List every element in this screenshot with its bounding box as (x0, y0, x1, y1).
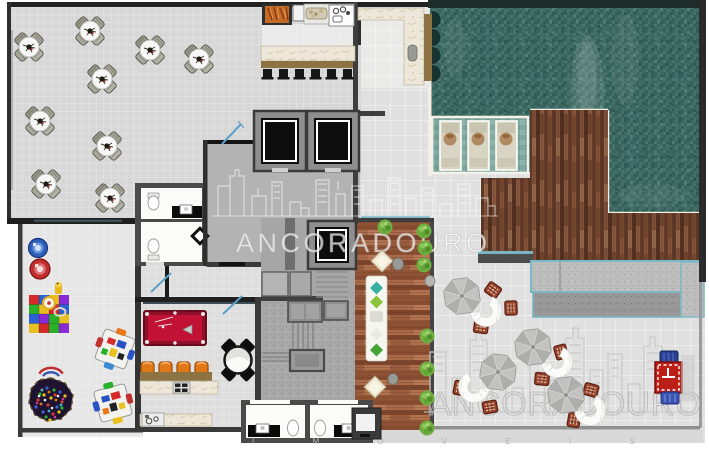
svg-text:ANCORADOURO: ANCORADOURO (236, 228, 491, 258)
svg-text:I M Ó V E I S: I M Ó V E I S (252, 437, 663, 446)
